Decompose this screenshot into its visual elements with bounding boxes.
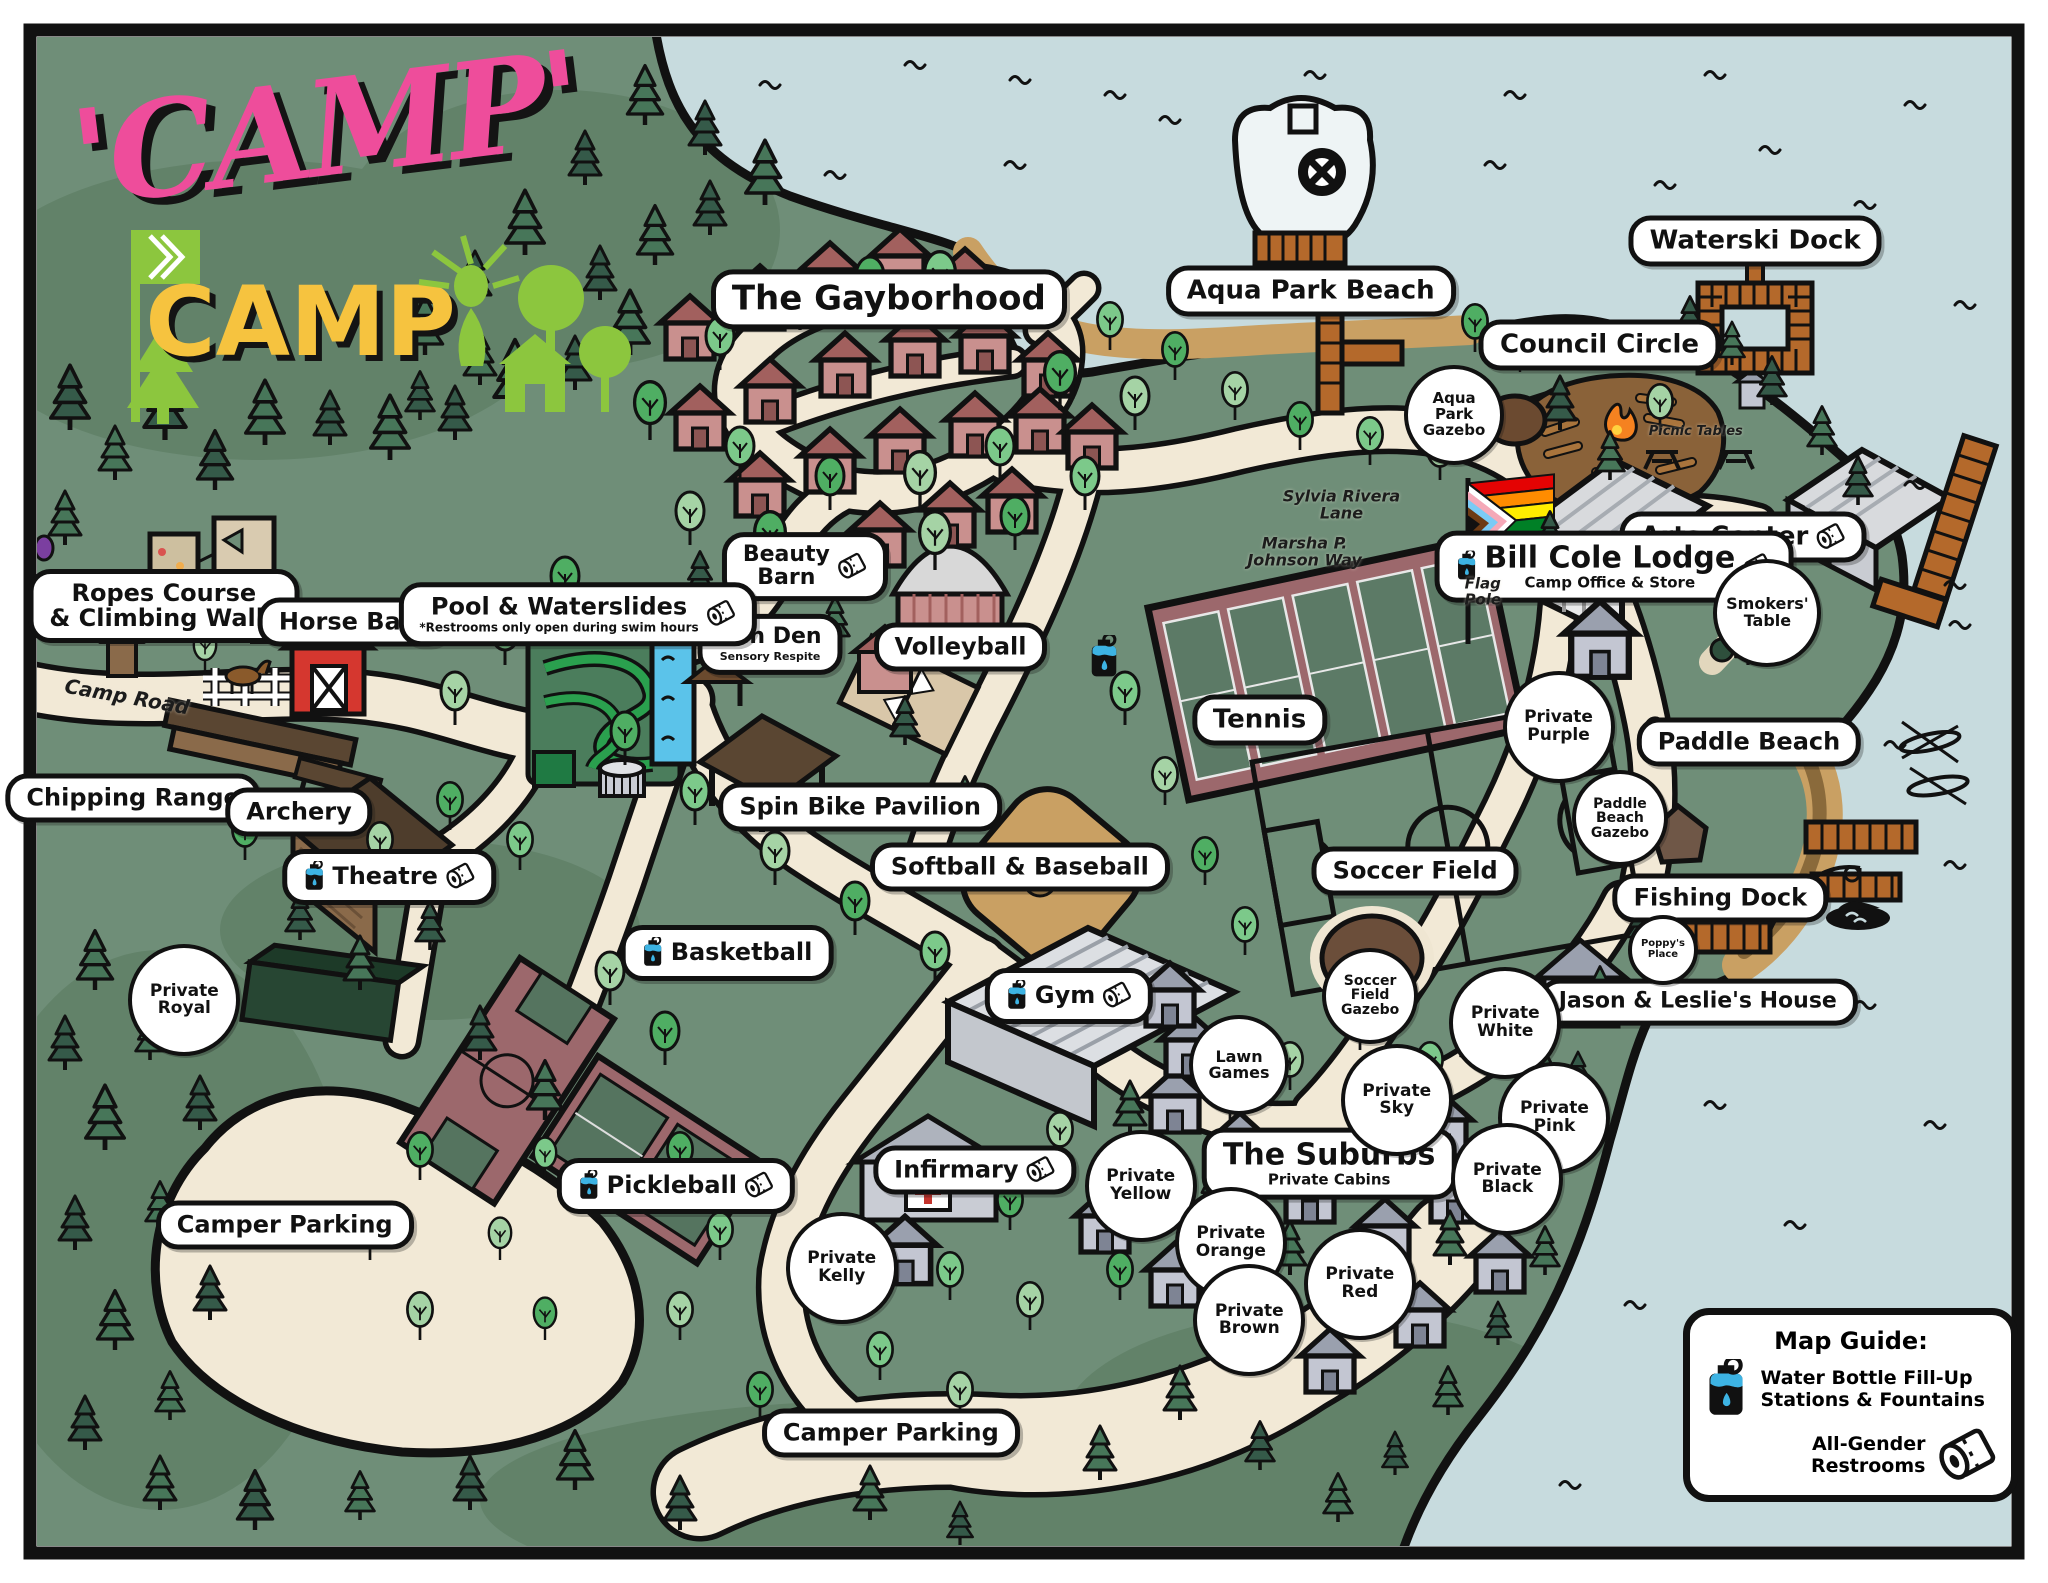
water-bottle-icon — [303, 861, 325, 893]
toilet-paper-icon — [837, 554, 867, 579]
toilet-paper-icon — [1937, 1431, 1997, 1481]
softball-baseball-label: Softball & Baseball — [870, 843, 1170, 892]
fishing-dock-label: Fishing Dock — [1613, 873, 1828, 922]
map-guide-item-label: Water Bottle Fill-Up Stations & Fountain… — [1760, 1368, 1997, 1412]
pool-hut — [600, 760, 644, 797]
toilet-paper-icon — [1102, 983, 1132, 1008]
toilet-paper-icon — [744, 1173, 774, 1198]
fill-station-court-junction-icon — [1087, 635, 1121, 679]
toilet-paper-icon — [445, 864, 475, 889]
waterski-dock-label: Waterski Dock — [1629, 215, 1882, 266]
map-guide: Map Guide: Water Bottle Fill-Up Stations… — [1683, 1308, 2018, 1502]
water-bottle-icon — [642, 937, 664, 969]
council-circle-label: Council Circle — [1479, 320, 1720, 371]
tennis-label: Tennis — [1192, 695, 1327, 746]
map-guide-title: Map Guide: — [1704, 1327, 1997, 1355]
water-bottle-icon — [1006, 980, 1028, 1012]
sylvia-rivera-lane-label: Sylvia RiveraLane — [1283, 488, 1401, 521]
theatre-label: Theatre — [282, 849, 496, 905]
smokers-table-label: Smokers'Table — [1713, 559, 1821, 667]
the-gayborhood-label: The Gayborhood — [711, 269, 1067, 328]
toilet-paper-icon — [706, 602, 736, 627]
pickleball-label: Pickleball — [557, 1158, 795, 1214]
spin-bike-pavilion-label: Spin Bike Pavilion — [718, 783, 1002, 832]
pool-waterslides-label: Pool & Waterslides*Restrooms only open d… — [398, 582, 756, 645]
private-kelly-label: PrivateKelly — [786, 1212, 898, 1324]
private-black-label: PrivateBlack — [1451, 1123, 1563, 1235]
poppys-place-label: Poppy'sPlace — [1628, 915, 1698, 985]
marsha-p-johnson-way-label: Marsha P.Johnson Way — [1247, 536, 1362, 569]
camper-parking-south-label: Camper Parking — [762, 1408, 1020, 1457]
basketball-label: Basketball — [621, 925, 834, 981]
flag-pole-label: FlagPole — [1464, 576, 1501, 607]
camp-map-stage: 'CAMP' CAMP Map Guide: Water Bottle — [0, 0, 2048, 1583]
purple-marker — [35, 536, 53, 560]
water-bottle-icon — [578, 1170, 600, 1202]
map-guide-item-label: All-Gender Restrooms — [1704, 1434, 1925, 1478]
lawn-games-label: LawnGames — [1189, 1015, 1289, 1115]
private-purple-label: PrivatePurple — [1503, 671, 1615, 783]
soccer-field-label: Soccer Field — [1312, 846, 1519, 895]
picnic-tables-label: Picnic Tables — [1649, 425, 1743, 439]
toilet-paper-icon — [1026, 1157, 1056, 1182]
paddle-beach-gazebo-label: PaddleBeachGazebo — [1572, 770, 1668, 866]
archery-label: Archery — [225, 788, 372, 837]
private-red-label: PrivateRed — [1304, 1228, 1416, 1340]
soccer-field-gazebo-label: SoccerFieldGazebo — [1322, 948, 1418, 1044]
aqua-park-beach-label: Aqua Park Beach — [1166, 266, 1456, 317]
private-brown-label: PrivateBrown — [1193, 1264, 1305, 1376]
aqua-park-gazebo-label: AquaParkGazebo — [1404, 365, 1504, 465]
gym-label: Gym — [985, 968, 1153, 1024]
volleyball-label: Volleyball — [874, 623, 1048, 672]
toilet-paper-icon — [1815, 524, 1845, 549]
camper-parking-west-label: Camper Parking — [156, 1201, 414, 1250]
chipping-range-label: Chipping Range — [5, 773, 260, 822]
pool-waterslides-area — [528, 634, 694, 797]
infirmary-label: Infirmary — [873, 1145, 1076, 1194]
jason-leslies-house-label: Jason & Leslie's House — [1538, 979, 1858, 1026]
private-sky-label: PrivateSky — [1341, 1044, 1453, 1156]
paddle-beach-label: Paddle Beach — [1637, 718, 1861, 767]
water-bottle-icon — [1704, 1359, 1748, 1421]
private-royal-label: PrivateRoyal — [128, 944, 240, 1056]
